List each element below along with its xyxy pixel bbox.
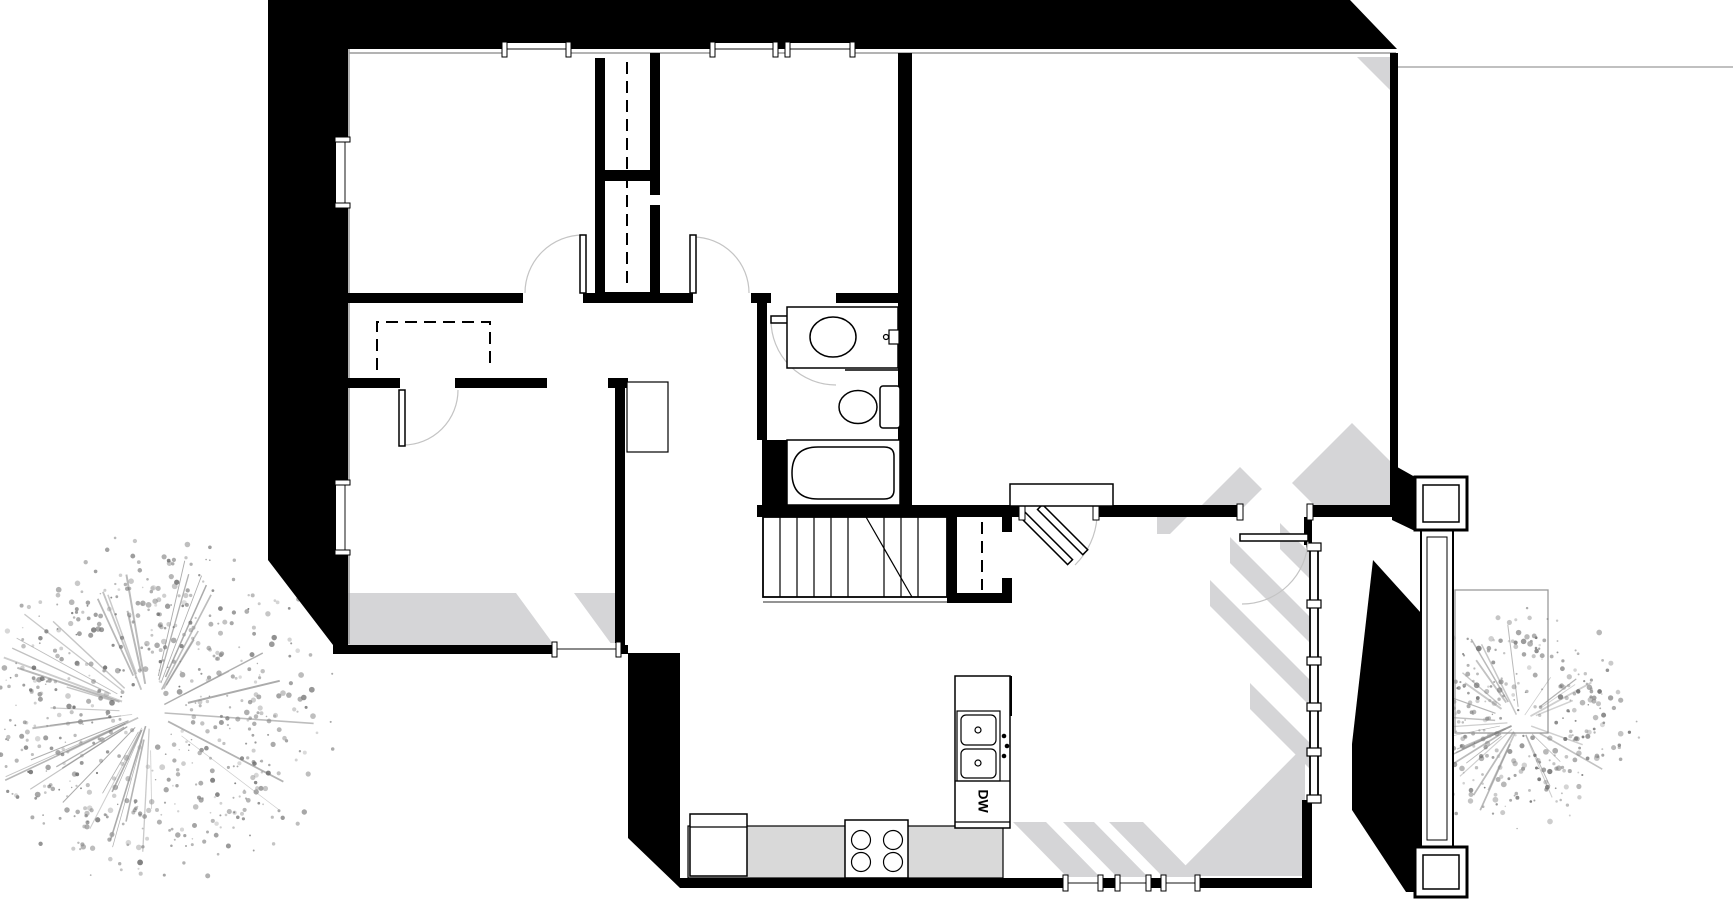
kitchen: DW [688, 676, 1010, 878]
faucet-dot [1002, 734, 1007, 739]
bathroom-sink [810, 317, 856, 357]
east-window-wall [1307, 543, 1321, 803]
door-leaf [1240, 534, 1308, 541]
burner [852, 853, 871, 872]
mechanical-closet [627, 382, 668, 452]
door-leaf [690, 235, 696, 293]
door-shadow [1157, 517, 1187, 534]
door-leaf [399, 390, 405, 446]
door-leaf [580, 235, 586, 293]
light-shaft [348, 593, 554, 645]
staircase [763, 517, 947, 602]
faucet-handle [884, 335, 889, 340]
bathtub [792, 447, 894, 499]
kitchen-appliance [690, 814, 747, 876]
toilet-bowl [839, 391, 877, 424]
tree-left [0, 537, 334, 879]
burner [884, 853, 903, 872]
light-shaft [1210, 580, 1310, 706]
burner [884, 831, 903, 850]
bathroom [787, 307, 900, 505]
faucet-dot [1005, 744, 1010, 749]
door-leaf [1038, 505, 1088, 555]
entry-stoop [1455, 590, 1548, 733]
faucet-dot [1002, 754, 1007, 759]
closet-shelf [377, 322, 490, 370]
toilet-tank [880, 386, 900, 428]
porch [1352, 464, 1467, 897]
faucet [889, 330, 899, 344]
builtin-bench [1010, 484, 1113, 506]
burner [852, 831, 871, 850]
floor-plan-page: DW [0, 0, 1733, 910]
chevron-shadow-small [1200, 467, 1262, 507]
dishwasher-label: DW [975, 789, 991, 813]
column-shadow [1392, 464, 1415, 531]
porch-cast-shadow [1352, 560, 1421, 892]
floor-plan-drawing: DW [0, 0, 1733, 910]
corner-light-wedge [1175, 745, 1305, 876]
porch-screen-inner [1427, 537, 1447, 840]
corner-shadow [1357, 57, 1390, 90]
door-leaf [1020, 512, 1073, 565]
